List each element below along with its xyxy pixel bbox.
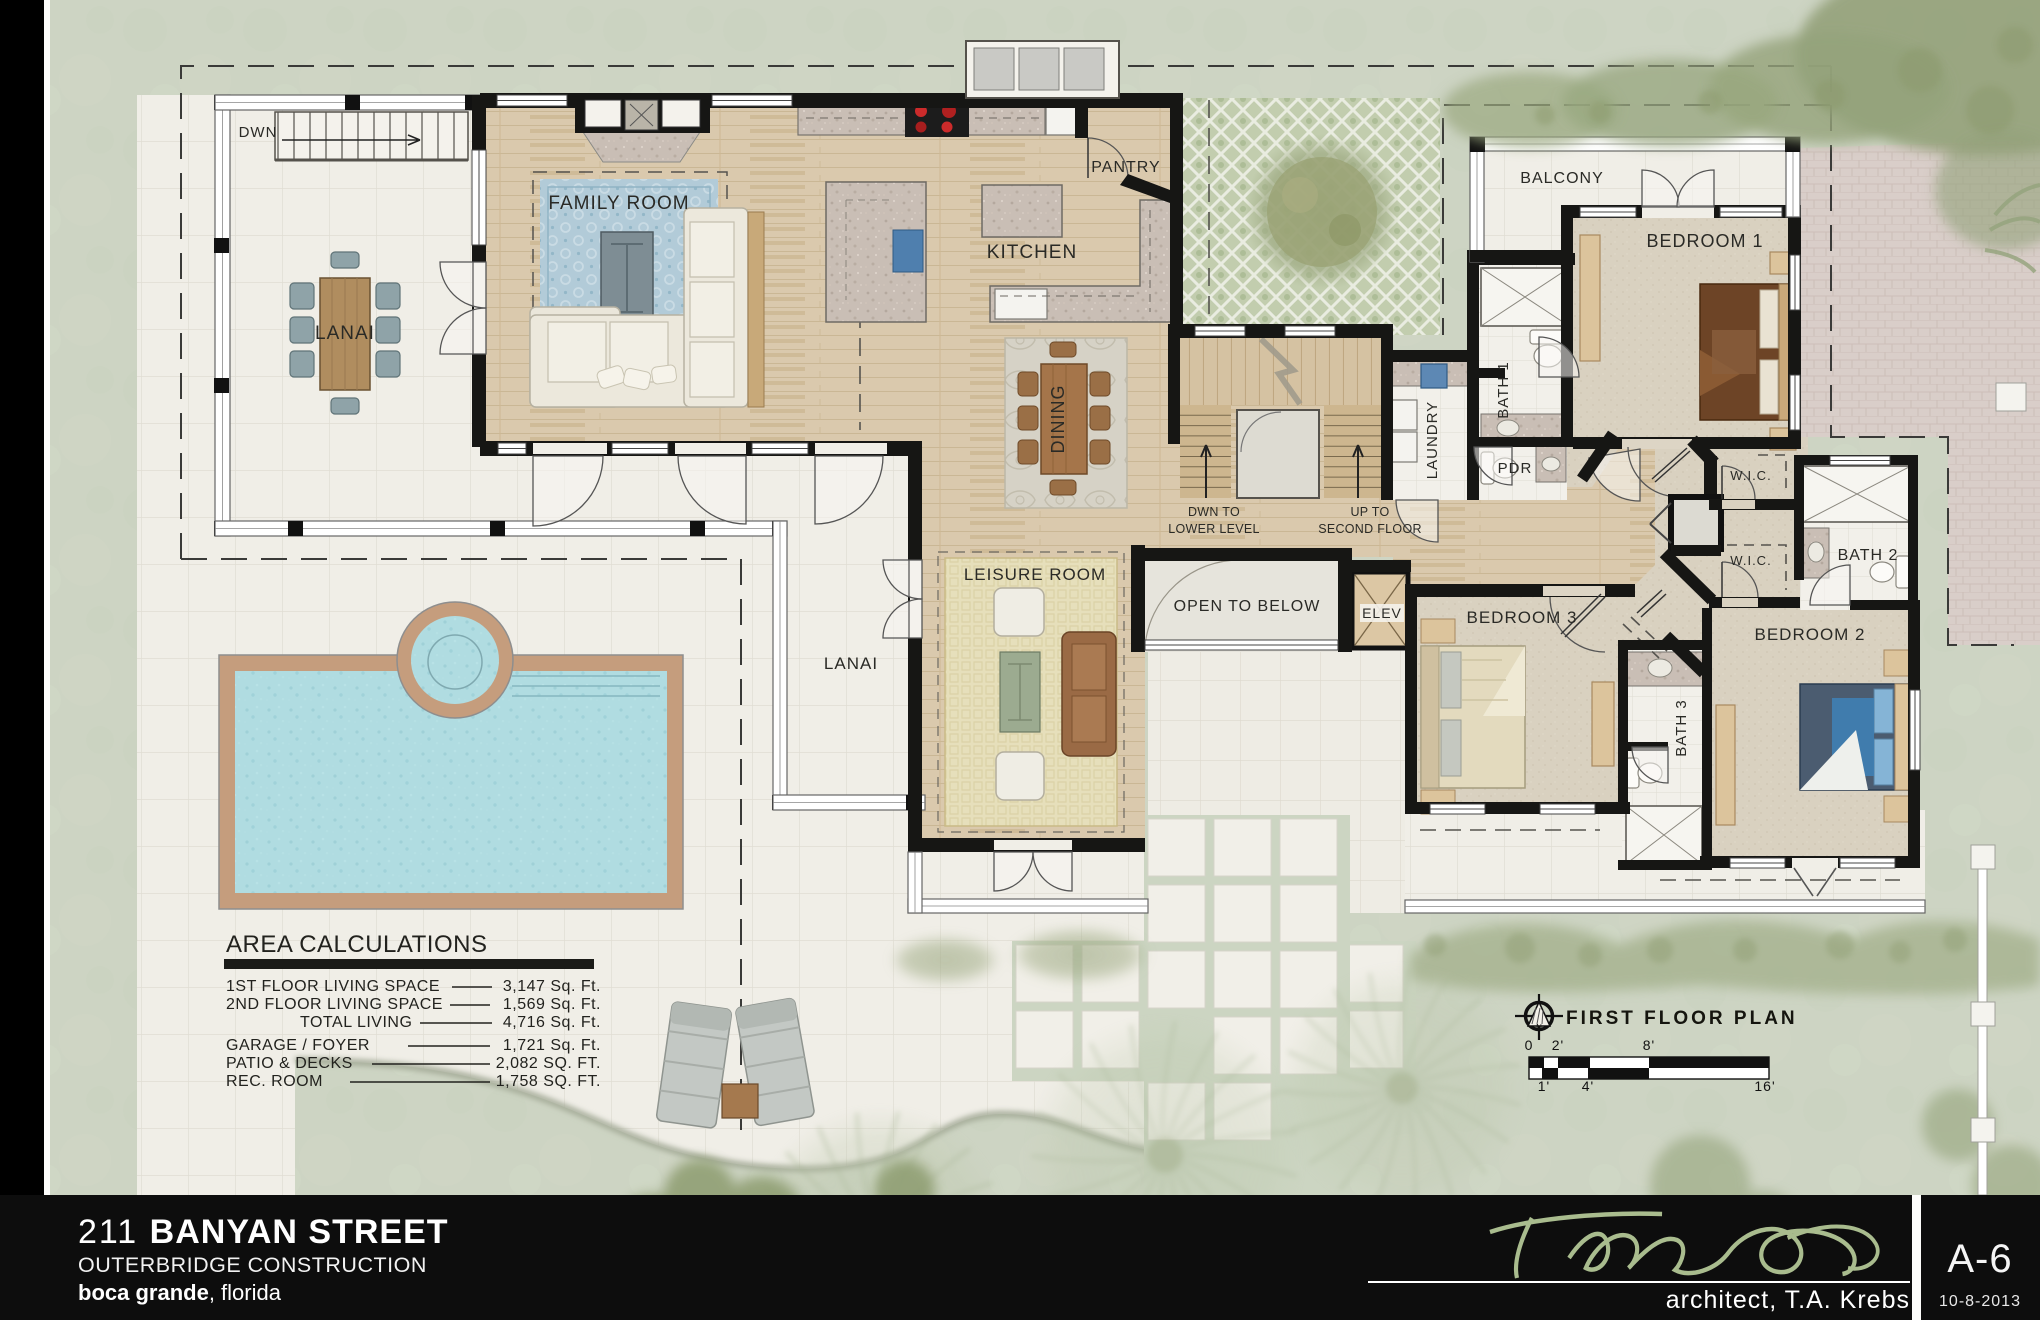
svg-text:PATIO & DECKS: PATIO & DECKS bbox=[226, 1055, 353, 1072]
svg-text:BATH 1: BATH 1 bbox=[1495, 361, 1512, 418]
svg-text:boca grande, florida: boca grande, florida bbox=[78, 1280, 282, 1305]
svg-text:AREA CALCULATIONS: AREA CALCULATIONS bbox=[226, 931, 487, 958]
svg-text:BEDROOM 2: BEDROOM 2 bbox=[1754, 625, 1865, 644]
svg-text:FAMILY ROOM: FAMILY ROOM bbox=[548, 193, 689, 214]
svg-text:2ND FLOOR LIVING SPACE: 2ND FLOOR LIVING SPACE bbox=[226, 996, 443, 1013]
svg-text:OPEN TO BELOW: OPEN TO BELOW bbox=[1174, 598, 1321, 615]
svg-text:2,082 SQ. FT.: 2,082 SQ. FT. bbox=[496, 1055, 601, 1072]
svg-text:DWN TO: DWN TO bbox=[1188, 505, 1240, 519]
svg-text:OUTERBRIDGE CONSTRUCTION: OUTERBRIDGE CONSTRUCTION bbox=[78, 1253, 427, 1277]
svg-text:0: 0 bbox=[1525, 1037, 1534, 1053]
svg-text:BALCONY: BALCONY bbox=[1520, 170, 1603, 187]
svg-text:2': 2' bbox=[1552, 1037, 1564, 1053]
svg-text:DINING: DINING bbox=[1048, 385, 1068, 454]
svg-text:PANTRY: PANTRY bbox=[1091, 159, 1160, 176]
svg-text:4,716 Sq. Ft.: 4,716 Sq. Ft. bbox=[503, 1014, 601, 1031]
svg-text:211 BANYAN STREET: 211 BANYAN STREET bbox=[78, 1213, 449, 1251]
svg-text:architect, T.A. Krebs: architect, T.A. Krebs bbox=[1666, 1286, 1910, 1314]
svg-text:1ST FLOOR LIVING SPACE: 1ST FLOOR LIVING SPACE bbox=[226, 978, 440, 995]
svg-text:SECOND FLOOR: SECOND FLOOR bbox=[1318, 522, 1422, 536]
svg-text:TOTAL LIVING: TOTAL LIVING bbox=[300, 1014, 412, 1031]
svg-text:LANAI: LANAI bbox=[824, 654, 878, 673]
svg-text:W.I.C.: W.I.C. bbox=[1730, 468, 1771, 483]
svg-text:10-8-2013: 10-8-2013 bbox=[1939, 1293, 2021, 1310]
svg-text:LOWER LEVEL: LOWER LEVEL bbox=[1168, 522, 1260, 536]
svg-text:UP TO: UP TO bbox=[1350, 505, 1389, 519]
svg-text:LEISURE ROOM: LEISURE ROOM bbox=[964, 565, 1106, 584]
svg-text:1,721 Sq. Ft.: 1,721 Sq. Ft. bbox=[503, 1037, 601, 1054]
svg-text:ELEV: ELEV bbox=[1362, 605, 1402, 621]
svg-text:N: N bbox=[1536, 1023, 1542, 1032]
svg-text:REC. ROOM: REC. ROOM bbox=[226, 1073, 323, 1090]
svg-text:BATH 3: BATH 3 bbox=[1673, 699, 1690, 756]
svg-text:16': 16' bbox=[1754, 1078, 1775, 1094]
svg-text:A-6: A-6 bbox=[1947, 1237, 2012, 1281]
svg-text:W.I.C.: W.I.C. bbox=[1730, 553, 1771, 568]
svg-text:DWN: DWN bbox=[239, 124, 278, 141]
svg-text:8': 8' bbox=[1643, 1037, 1655, 1053]
svg-text:1,569 Sq. Ft.: 1,569 Sq. Ft. bbox=[503, 996, 601, 1013]
svg-text:3,147 Sq. Ft.: 3,147 Sq. Ft. bbox=[503, 978, 601, 995]
svg-text:GARAGE / FOYER: GARAGE / FOYER bbox=[226, 1037, 370, 1054]
svg-text:PDR: PDR bbox=[1498, 460, 1533, 477]
svg-text:LAUNDRY: LAUNDRY bbox=[1424, 401, 1441, 479]
svg-text:4': 4' bbox=[1582, 1078, 1594, 1094]
svg-text:KITCHEN: KITCHEN bbox=[987, 242, 1077, 263]
svg-text:BATH 2: BATH 2 bbox=[1838, 547, 1899, 564]
svg-text:1': 1' bbox=[1538, 1078, 1550, 1094]
svg-text:LANAI: LANAI bbox=[315, 323, 375, 344]
svg-text:BEDROOM 1: BEDROOM 1 bbox=[1646, 231, 1763, 251]
svg-text:BEDROOM 3: BEDROOM 3 bbox=[1466, 608, 1577, 627]
svg-text:1,758 SQ. FT.: 1,758 SQ. FT. bbox=[496, 1073, 601, 1090]
svg-text:FIRST FLOOR PLAN: FIRST FLOOR PLAN bbox=[1566, 1008, 1798, 1029]
